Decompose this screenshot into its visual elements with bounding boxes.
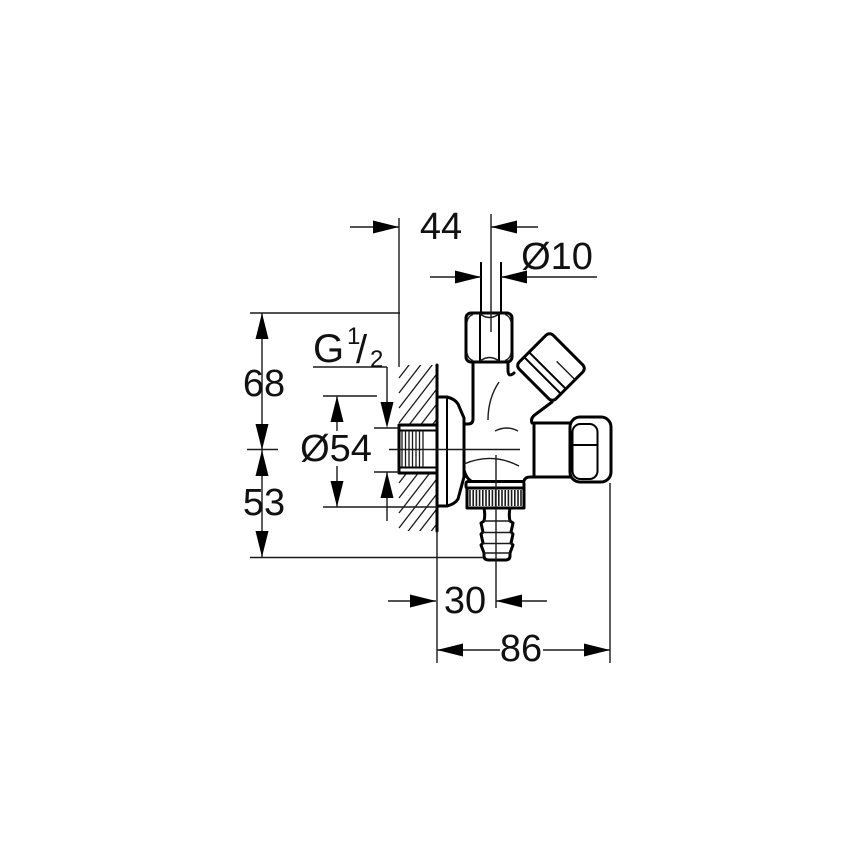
knurled-ring (466, 482, 524, 509)
drawing-page: 44 Ø10 68 53 Ø54 (0, 0, 868, 868)
dim-label-53: 53 (243, 482, 285, 524)
dimension-86: 86 (437, 483, 610, 670)
dimension-thread: G 1 / 2 (313, 323, 399, 521)
dim-label-44: 44 (420, 206, 462, 248)
mounting-flange (437, 397, 464, 506)
technical-drawing: 44 Ø10 68 53 Ø54 (0, 0, 868, 868)
hose-barb (481, 508, 513, 560)
dim-label-thread: G 1 / 2 (313, 323, 383, 373)
dim-label-dia54: Ø54 (300, 428, 372, 470)
compression-nut (466, 313, 512, 362)
dim-label-68: 68 (243, 363, 285, 405)
dim-label-30: 30 (444, 580, 486, 622)
dim-label-86: 86 (500, 628, 542, 670)
angled-outlet (516, 332, 587, 403)
dim-label-dia10: Ø10 (521, 236, 593, 278)
hose-union (534, 417, 611, 482)
